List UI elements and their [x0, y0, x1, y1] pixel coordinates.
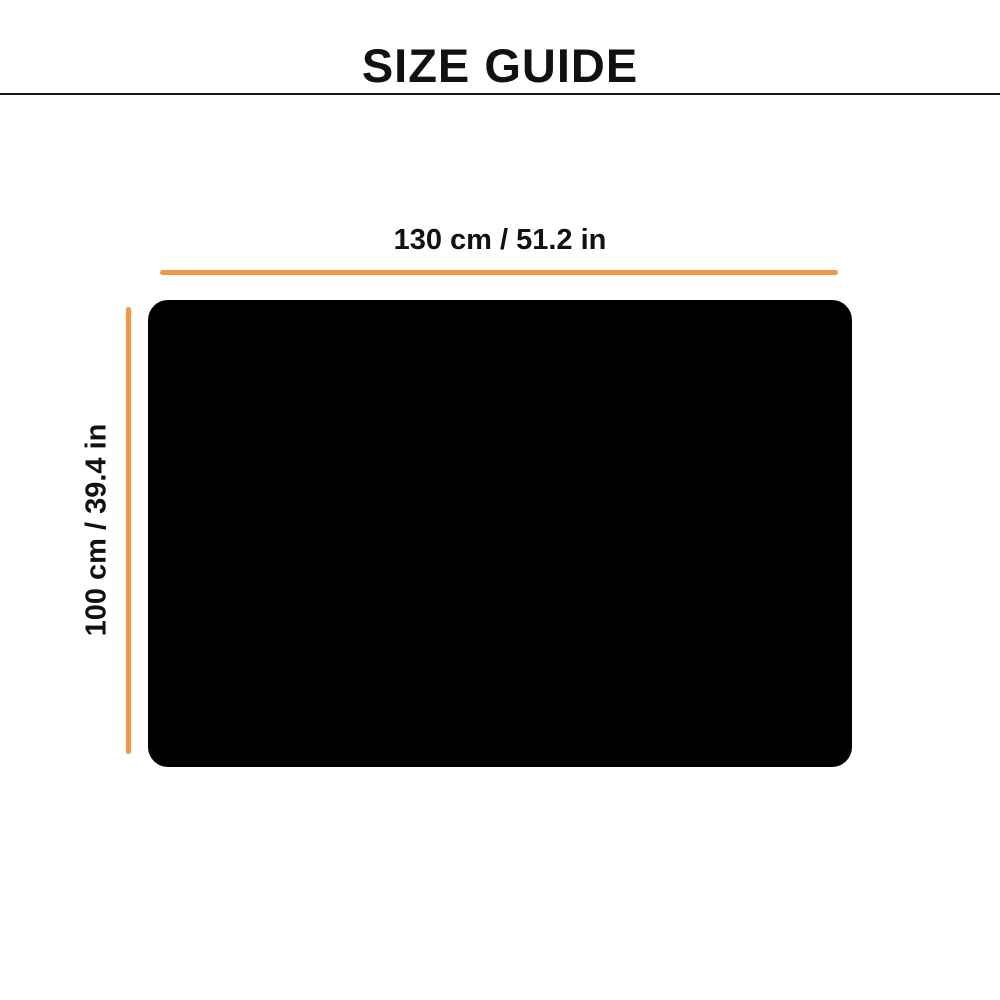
size-guide-page: SIZE GUIDE 130 cm / 51.2 in 100 cm / 39.… — [0, 0, 1000, 1000]
height-measure-line — [126, 307, 131, 754]
height-dimension-label: 100 cm / 39.4 in — [81, 424, 114, 637]
product-rectangle — [148, 300, 852, 767]
width-measure-line — [160, 270, 838, 275]
page-title: SIZE GUIDE — [0, 40, 1000, 92]
width-dimension-label: 130 cm / 51.2 in — [0, 224, 1000, 257]
header-divider — [0, 93, 1000, 95]
